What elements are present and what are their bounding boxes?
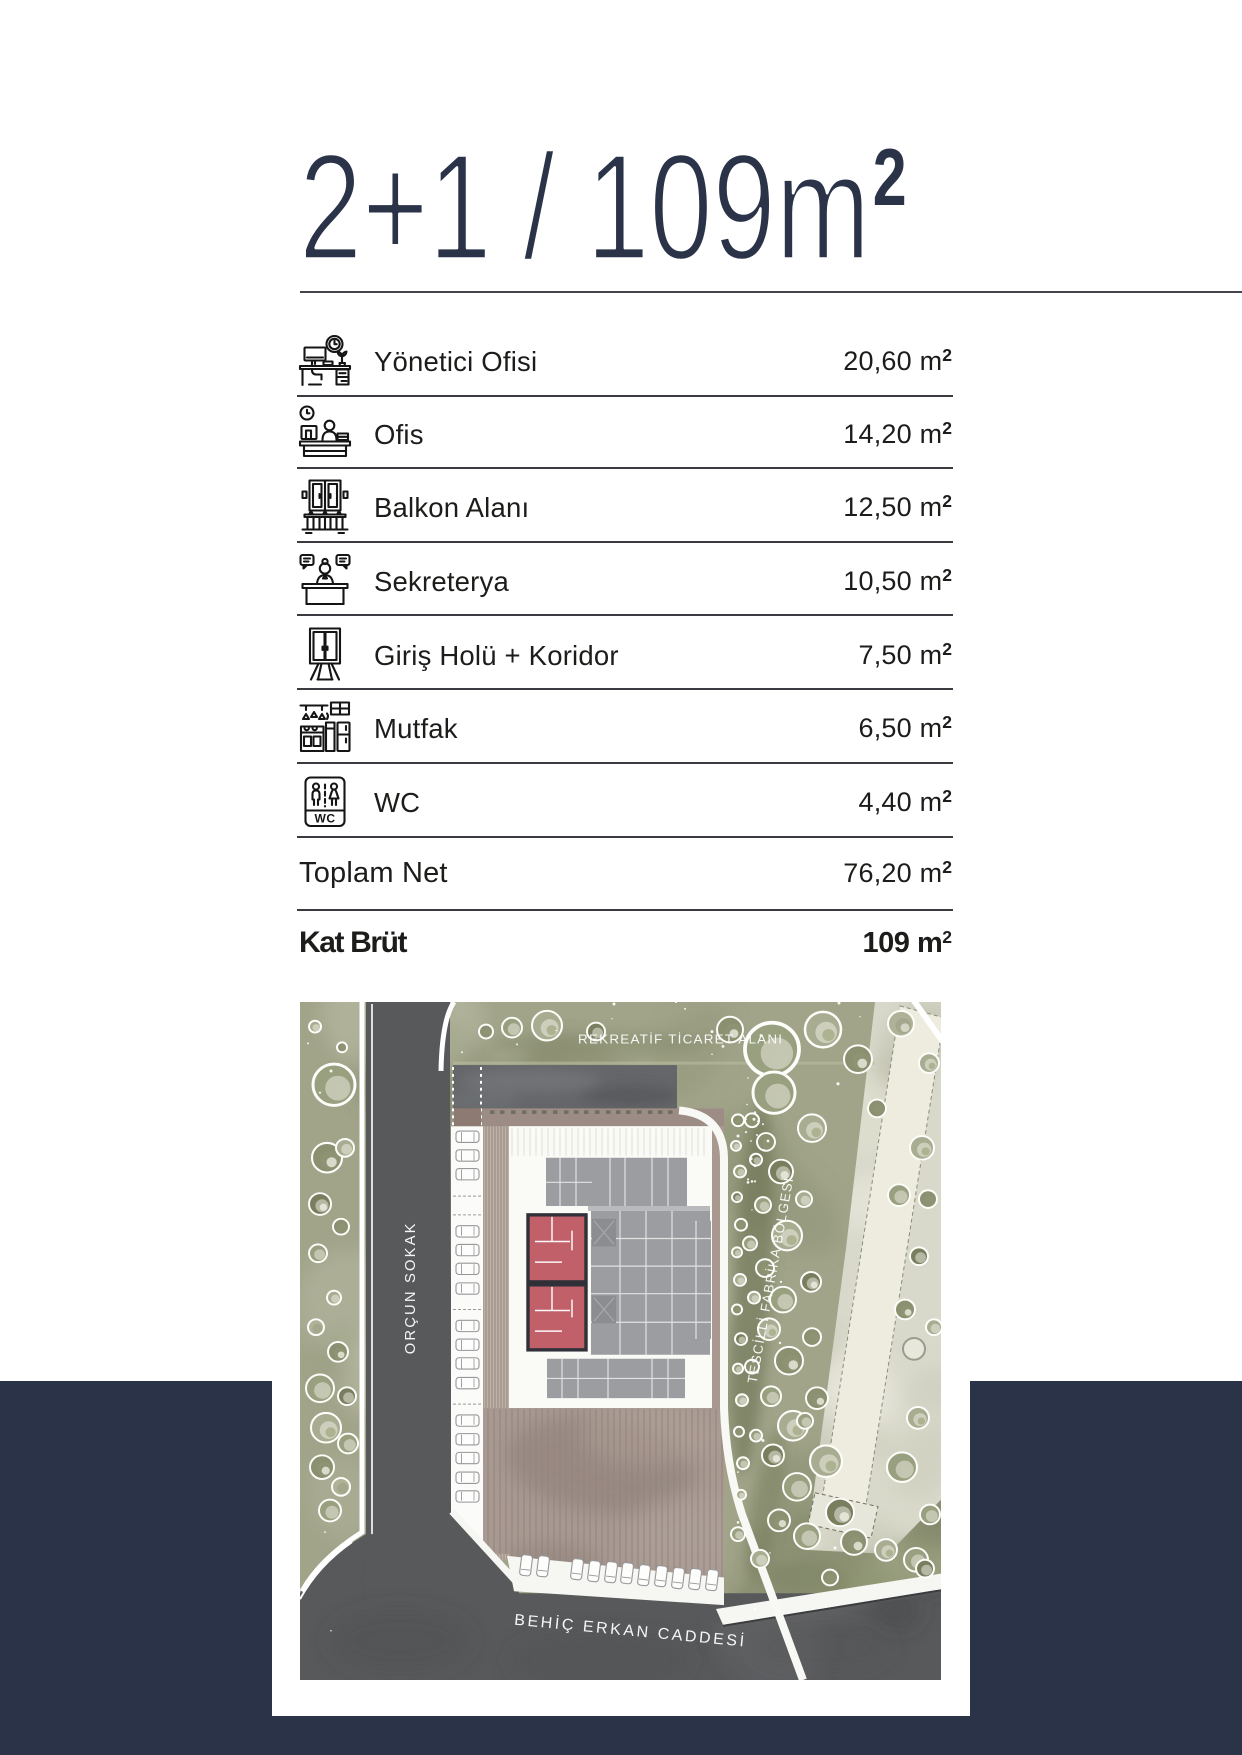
svg-text:ORÇUN SOKAK: ORÇUN SOKAK [403,1221,419,1354]
svg-text:2: 2 [873,133,907,223]
svg-text:2+1 / 109m: 2+1 / 109m [299,123,870,291]
svg-text:REKREATİF TİCARET ALANI: REKREATİF TİCARET ALANI [578,1031,783,1046]
svg-text:WC: WC [315,812,336,826]
